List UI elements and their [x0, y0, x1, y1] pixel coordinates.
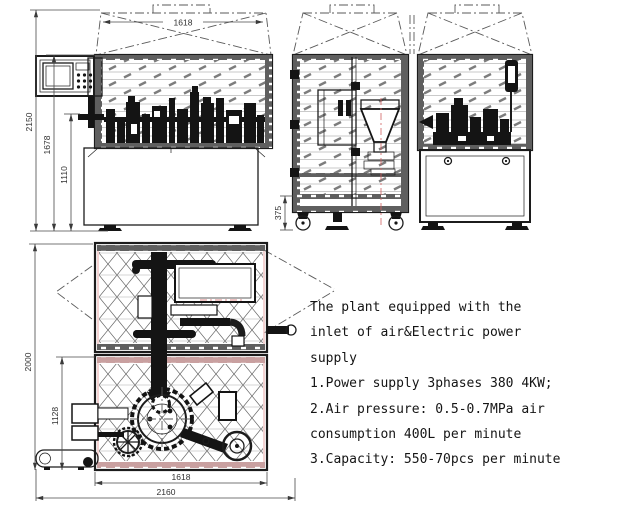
- dimension-front-height-enclosure: 1678: [42, 55, 95, 231]
- side-view-left: 375: [273, 5, 414, 230]
- side-right-hood-phantom: [418, 5, 532, 55]
- front-base-cabinet: [84, 148, 265, 231]
- note-line-5: 2.Air pressure: 0.5-0.7MPa air: [310, 397, 640, 422]
- note-line-6: consumption 400L per minute: [310, 422, 640, 447]
- dim-label-plan-depth-overall: 2000: [23, 352, 33, 371]
- dim-label-plan-width-overall: 2160: [157, 487, 176, 497]
- note-line-4: 1.Power supply 3phases 380 4KW;: [310, 371, 640, 396]
- dim-label-plan-depth-lower: 1128: [50, 407, 60, 426]
- front-hood-phantom: [96, 5, 271, 55]
- side-left-casters: [296, 212, 403, 230]
- dimension-plan-width-inner: 1618: [95, 472, 267, 486]
- dim-label-front-height-enclosure: 1678: [42, 135, 52, 154]
- dim-label-front-height-table: 1110: [59, 166, 69, 184]
- dim-label-plan-width-inner: 1618: [172, 472, 191, 482]
- note-line-7: 3.Capacity: 550-70pcs per minute: [310, 447, 640, 472]
- note-line-3: supply: [310, 346, 640, 371]
- dimension-plan-width-overall: 2160: [36, 469, 295, 501]
- side-right-cabinet: [420, 150, 530, 230]
- plan-outfeed-conveyor: [36, 450, 98, 470]
- front-elevation-view: 1618: [24, 5, 272, 231]
- drawing-page: 1618: [0, 0, 640, 510]
- plan-view: 2000 1128 1618 2160: [23, 243, 334, 501]
- front-right-foot: [228, 225, 252, 231]
- control-panel-hmi: [36, 56, 104, 128]
- hmi-screen: [43, 63, 73, 89]
- dim-label-side-base-height: 375: [273, 206, 283, 220]
- front-left-foot: [98, 225, 122, 231]
- notes-block: The plant equipped with the inlet of air…: [310, 295, 640, 473]
- note-line-1: The plant equipped with the: [310, 295, 640, 320]
- dimension-front-height-table: 1110: [59, 114, 80, 231]
- dimension-front-width: 1618: [103, 18, 263, 28]
- side-left-hood-phantom: [293, 5, 407, 55]
- hmi-buttons: [77, 73, 92, 88]
- note-line-2: inlet of air&Electric power: [310, 320, 640, 345]
- dim-label-front-width: 1618: [174, 18, 193, 28]
- side-view-right: [418, 5, 532, 230]
- dimension-side-base-height: 375: [273, 196, 293, 230]
- dim-label-front-height-overall: 2150: [24, 112, 34, 131]
